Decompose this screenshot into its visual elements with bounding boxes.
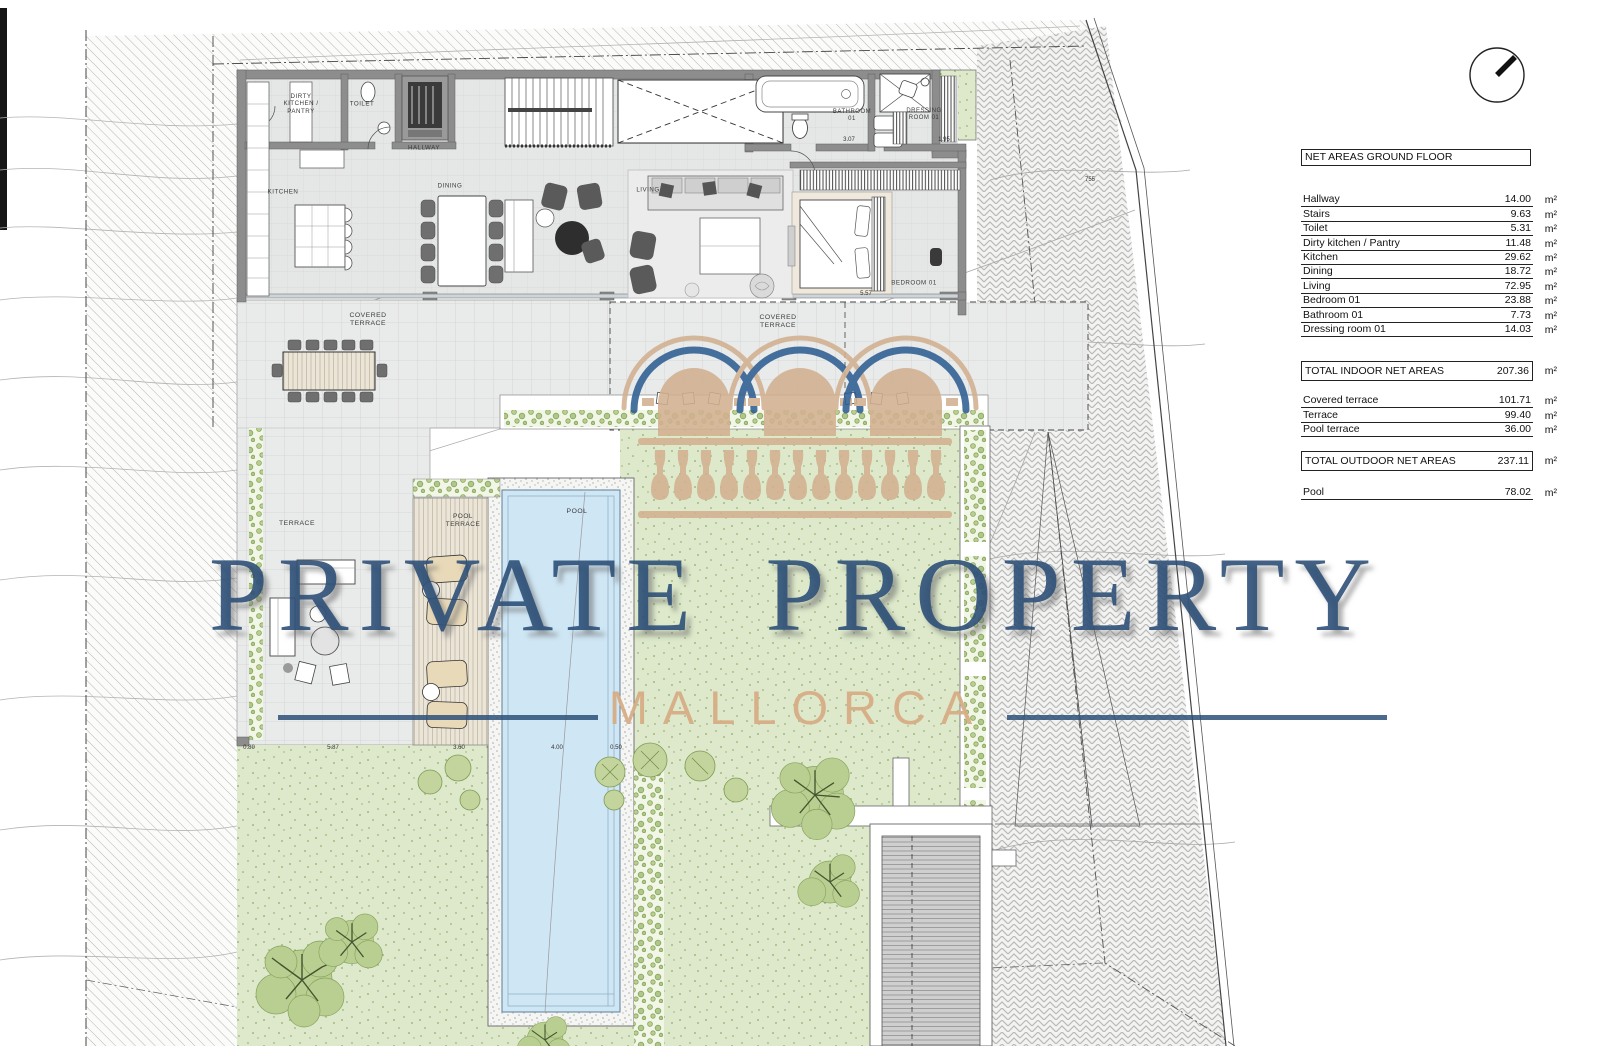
area-row-unit: m²: [1537, 410, 1557, 423]
label-bathroom-01: BATHROOM 01: [833, 109, 871, 123]
area-table-row: Bathroom 017.73m²: [1301, 308, 1557, 322]
pool-row-label: Pool: [1303, 486, 1324, 498]
area-row-label: Dining: [1303, 265, 1333, 277]
area-table-row: Pool terrace36.00m²: [1301, 423, 1557, 437]
total-indoor-value: 207.36: [1497, 365, 1529, 377]
area-row-unit: m²: [1537, 266, 1557, 279]
area-row-label: Dirty kitchen / Pantry: [1303, 237, 1400, 249]
area-row-value: 101.71: [1499, 394, 1531, 406]
area-row-unit: m²: [1537, 281, 1557, 294]
watermark-rule-left: [278, 715, 598, 720]
total-indoor-label: TOTAL INDOOR NET AREAS: [1305, 365, 1444, 377]
area-table-row: Dressing room 0114.03m²: [1301, 323, 1557, 337]
label-dining: DINING: [438, 182, 463, 189]
label-pool: POOL: [567, 508, 588, 516]
area-row-unit: m²: [1537, 194, 1557, 207]
dimension-label: 4.00: [551, 745, 563, 751]
area-row-label: Covered terrace: [1303, 394, 1378, 406]
area-row-label: Dressing room 01: [1303, 323, 1386, 335]
area-row-value: 14.00: [1505, 193, 1531, 205]
area-row-unit: m²: [1537, 238, 1557, 251]
area-row-unit: m²: [1537, 209, 1557, 222]
total-outdoor-label: TOTAL OUTDOOR NET AREAS: [1305, 455, 1456, 467]
area-row-unit: m²: [1537, 424, 1557, 437]
pool-row-unit: m²: [1537, 487, 1557, 500]
area-row-label: Living: [1303, 280, 1330, 292]
area-row-value: 72.95: [1505, 280, 1531, 292]
dimension-label: 3.60: [453, 745, 465, 751]
area-table-row: Toilet5.31m²: [1301, 222, 1557, 236]
area-row-label: Bedroom 01: [1303, 294, 1360, 306]
area-row-value: 36.00: [1505, 423, 1531, 435]
label-covered-terrace-right: COVERED TERRACE: [759, 314, 796, 330]
area-table-row: Living72.95m²: [1301, 279, 1557, 293]
total-indoor-row: TOTAL INDOOR NET AREAS 207.36 m²: [1301, 361, 1557, 381]
area-table-row: Kitchen29.62m²: [1301, 251, 1557, 265]
total-outdoor-row: TOTAL OUTDOOR NET AREAS 237.11 m²: [1301, 451, 1557, 471]
area-row-unit: m²: [1537, 310, 1557, 323]
area-row-label: Toilet: [1303, 222, 1328, 234]
area-row-value: 18.72: [1505, 265, 1531, 277]
label-dressing-room-01: DRESSING ROOM 01: [906, 108, 941, 122]
outdoor-areas-rows: Covered terrace101.71m²Terrace99.40m²Poo…: [1301, 394, 1557, 437]
area-table-row: Dining18.72m²: [1301, 265, 1557, 279]
area-table-row: Stairs9.63m²: [1301, 207, 1557, 221]
pool-row-value: 78.02: [1505, 486, 1531, 498]
area-row-value: 29.62: [1505, 251, 1531, 263]
label-covered-terrace-left: COVERED TERRACE: [349, 312, 386, 328]
floor-plan-page: DIRTY KITCHEN / PANTRYTOILETHALLWAYKITCH…: [0, 0, 1602, 1046]
label-pool-terrace: POOL TERRACE: [446, 513, 481, 529]
area-row-label: Terrace: [1303, 409, 1338, 421]
pool-area-row: Pool 78.02 m²: [1301, 486, 1557, 500]
total-outdoor-value: 237.11: [1498, 455, 1529, 467]
area-row-value: 23.88: [1505, 294, 1531, 306]
area-table-row: Bedroom 0123.88m²: [1301, 294, 1557, 308]
area-row-value: 14.03: [1505, 323, 1531, 335]
dimension-label: 3.07: [843, 137, 855, 143]
area-row-value: 5.31: [1511, 222, 1531, 234]
net-areas-title: NET AREAS GROUND FLOOR: [1301, 149, 1531, 166]
dimension-label: 5.57: [860, 291, 872, 297]
indoor-areas-rows: Hallway14.00m²Stairs9.63m²Toilet5.31m²Di…: [1301, 193, 1557, 337]
area-row-unit: m²: [1537, 223, 1557, 236]
dimension-label: 0.80: [243, 745, 255, 751]
area-row-unit: m²: [1537, 324, 1557, 337]
dimension-label: 0.50: [610, 745, 622, 751]
area-row-value: 7.73: [1511, 309, 1531, 321]
total-outdoor-unit: m²: [1537, 455, 1557, 468]
watermark-title: PRIVATE PROPERTY: [165, 534, 1425, 656]
area-row-unit: m²: [1537, 252, 1557, 265]
area-row-label: Pool terrace: [1303, 423, 1360, 435]
area-row-value: 99.40: [1505, 409, 1531, 421]
area-table-row: Terrace99.40m²: [1301, 408, 1557, 422]
area-table-row: Dirty kitchen / Pantry11.48m²: [1301, 236, 1557, 250]
area-row-value: 9.63: [1511, 208, 1531, 220]
label-bedroom-01: BEDROOM 01: [891, 279, 937, 286]
dimension-label: 5.87: [327, 745, 339, 751]
label-kitchen: KITCHEN: [268, 188, 299, 195]
area-row-value: 11.48: [1506, 237, 1532, 249]
area-row-label: Hallway: [1303, 193, 1340, 205]
label-terrace: TERRACE: [279, 520, 315, 528]
watermark-rule-right: [1007, 715, 1387, 720]
label-toilet: TOILET: [350, 100, 375, 107]
area-row-unit: m²: [1537, 295, 1557, 308]
label-hallway: HALLWAY: [408, 144, 440, 151]
area-row-label: Kitchen: [1303, 251, 1338, 263]
area-table-row: Covered terrace101.71m²: [1301, 394, 1557, 408]
north-arrow-icon: [1466, 44, 1528, 106]
label-living: LIVING: [636, 186, 659, 193]
dimension-label: 755: [1085, 177, 1095, 183]
dimension-label: 1.95: [938, 137, 950, 143]
area-row-label: Bathroom 01: [1303, 309, 1363, 321]
label-dirty-kitchen-pantry: DIRTY KITCHEN / PANTRY: [283, 93, 318, 115]
watermark-subtitle: MALLORCA: [598, 680, 998, 735]
total-indoor-unit: m²: [1537, 365, 1557, 378]
area-row-label: Stairs: [1303, 208, 1330, 220]
area-row-unit: m²: [1537, 395, 1557, 408]
area-table-row: Hallway14.00m²: [1301, 193, 1557, 207]
